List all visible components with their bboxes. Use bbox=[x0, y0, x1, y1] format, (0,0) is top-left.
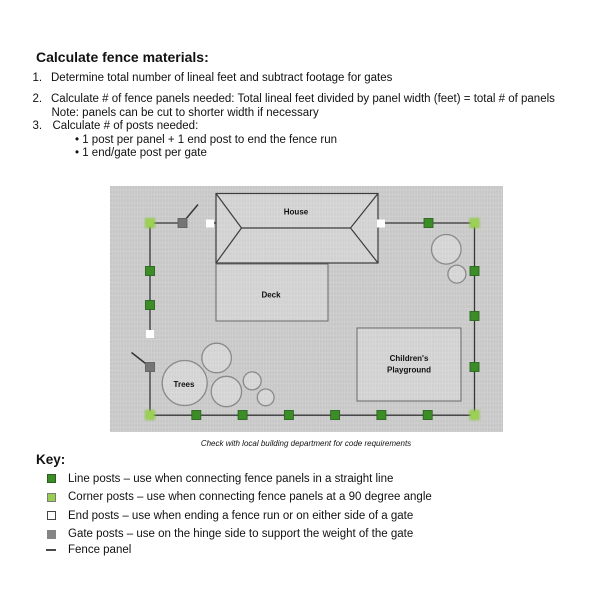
svg-text:Children's: Children's bbox=[390, 354, 429, 363]
svg-text:House: House bbox=[284, 208, 309, 217]
svg-text:Trees: Trees bbox=[174, 380, 195, 389]
svg-text:Playground: Playground bbox=[387, 365, 431, 374]
svg-text:Deck: Deck bbox=[261, 291, 281, 300]
